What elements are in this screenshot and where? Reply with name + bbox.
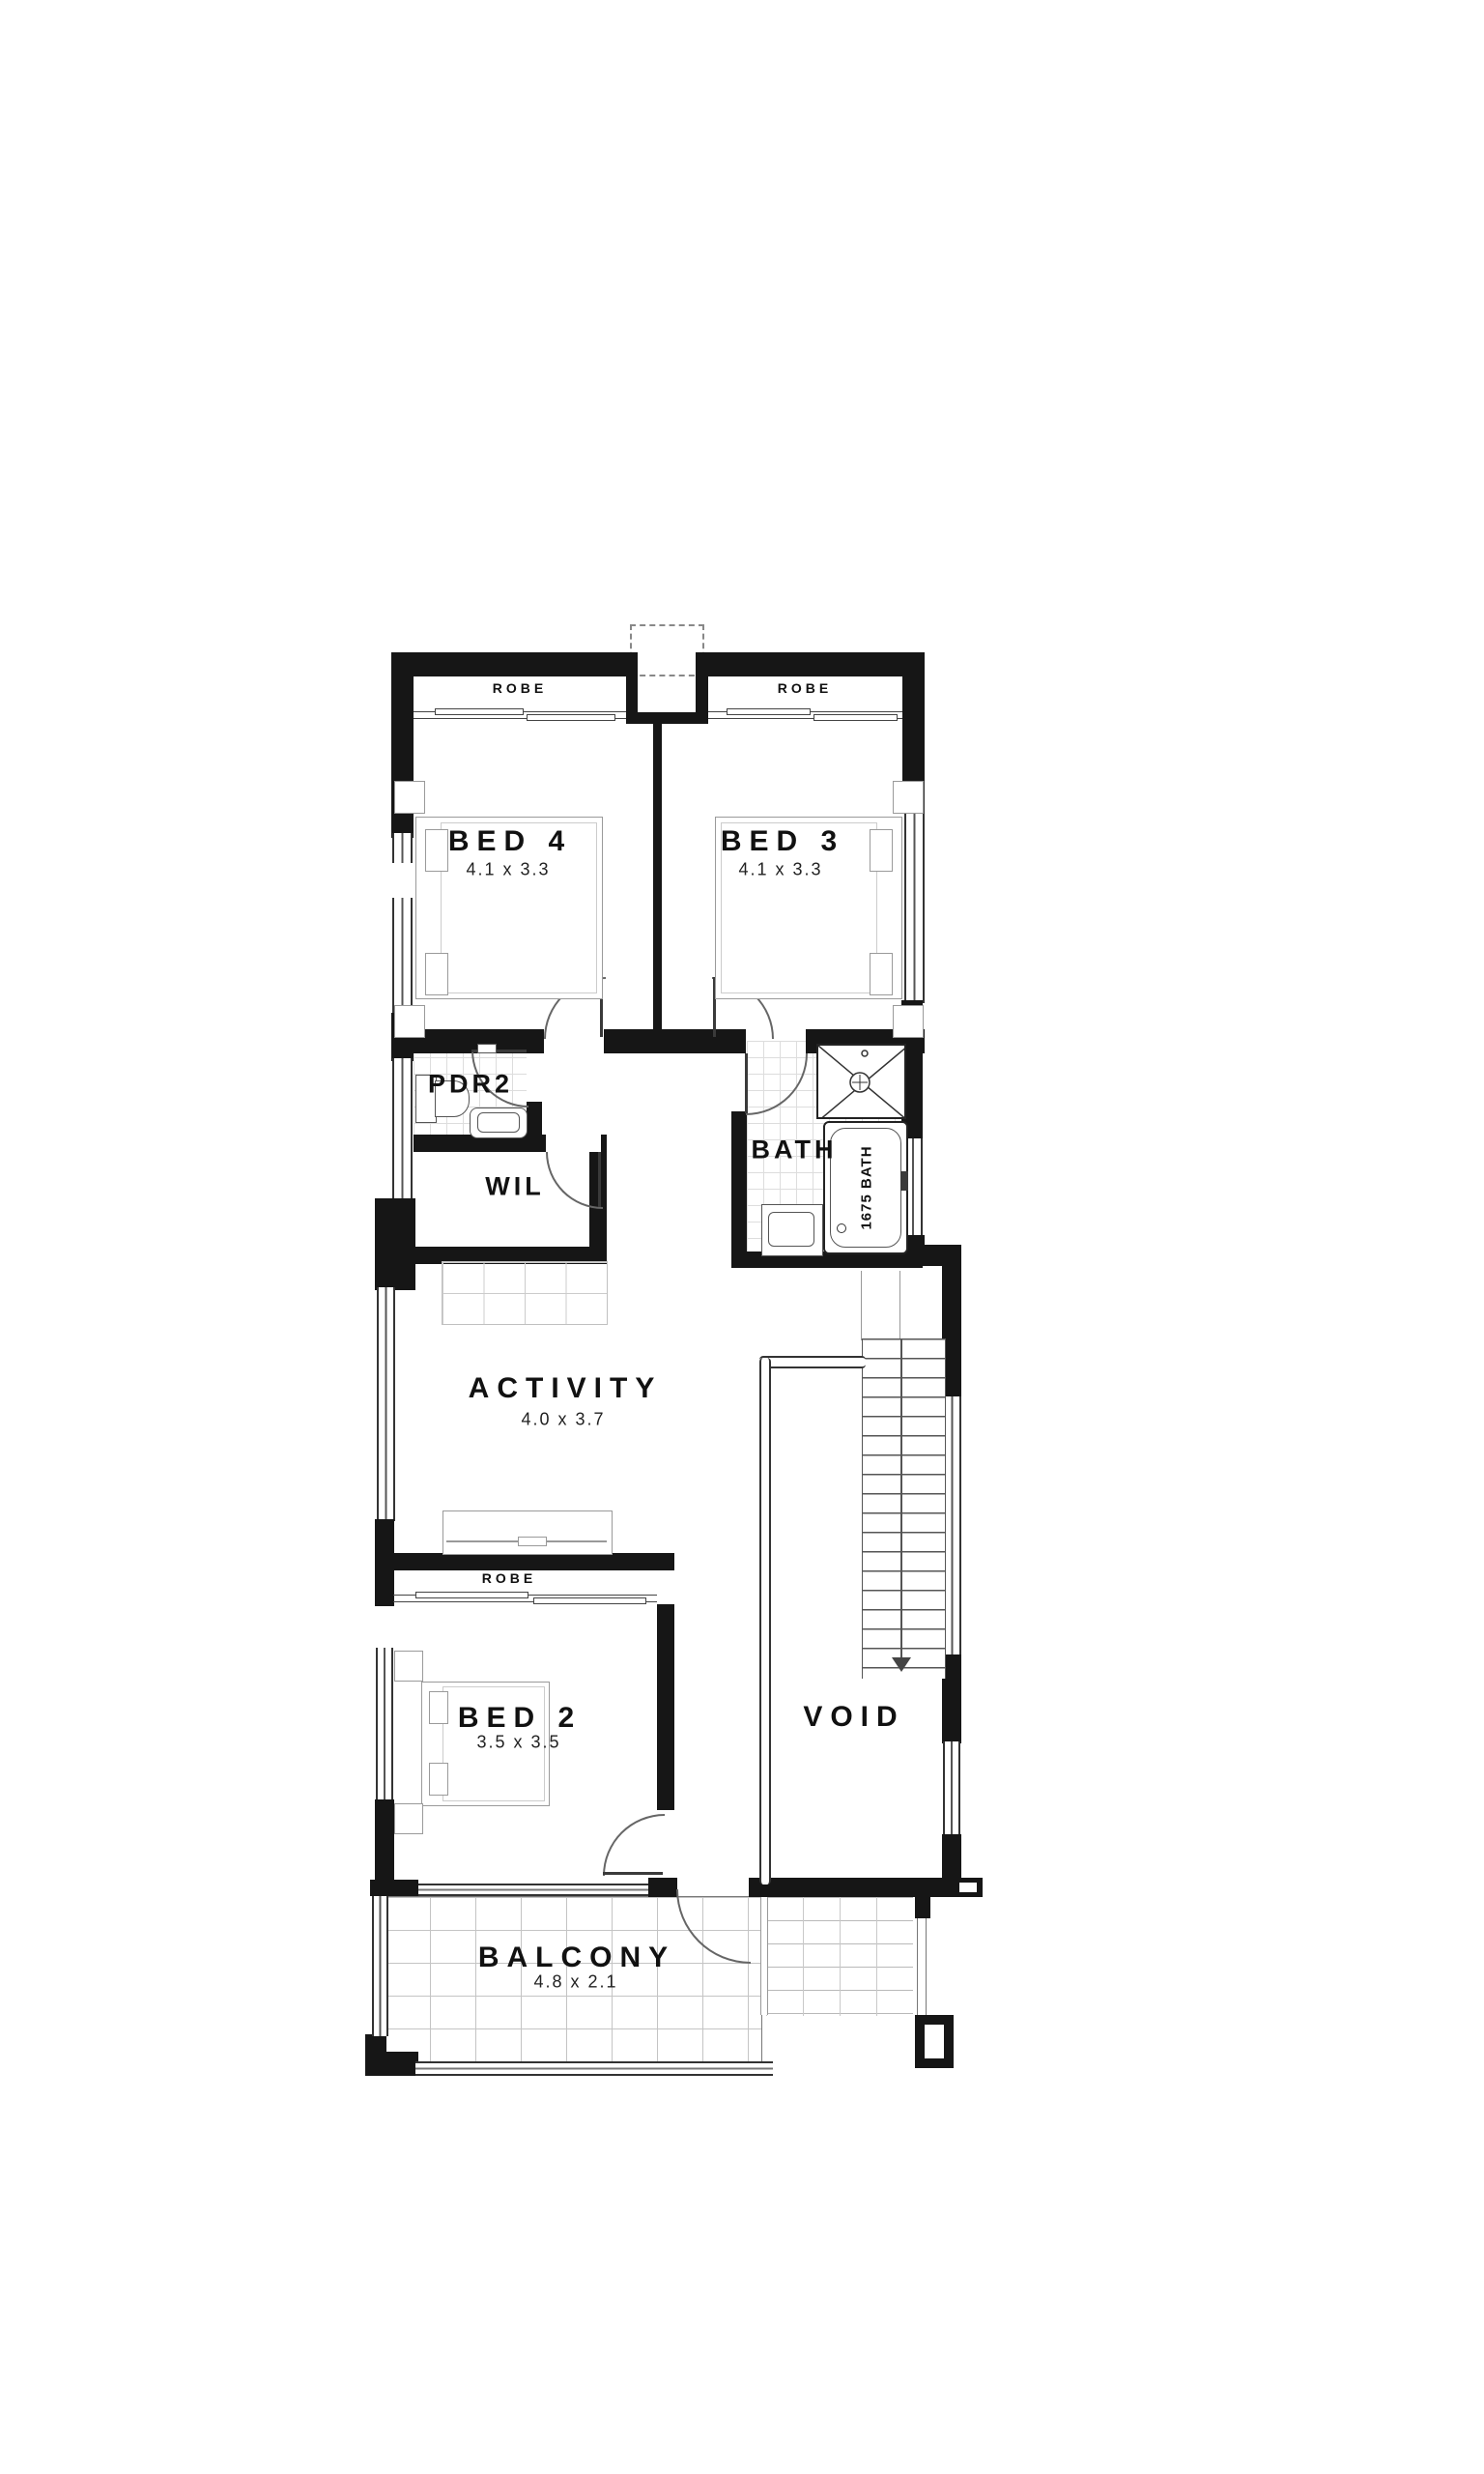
bed4-window: [392, 833, 413, 1017]
shower: [816, 1044, 906, 1119]
bed3-window: [904, 781, 925, 1003]
bed3-robe-door: [813, 714, 898, 721]
bed3-side-table: [893, 781, 924, 814]
shower-screen-lines: [818, 1046, 906, 1119]
bed2-side-table: [394, 1651, 423, 1682]
bed3-pillow: [870, 953, 893, 995]
activity-desk-drawer: [518, 1537, 547, 1546]
bathtub-tap: [900, 1171, 908, 1191]
bed4-dims: 4.1 x 3.3: [466, 860, 550, 880]
activity-label: ACTIVITY: [469, 1372, 663, 1405]
pdr2-shelf: [477, 1044, 497, 1053]
north-marker-box: [389, 863, 413, 898]
activity-window: [377, 1287, 395, 1521]
bed3-robe-label: ROBE: [778, 680, 832, 696]
bed3-side-table: [893, 1005, 924, 1038]
pdr2-right-wall-top: [527, 1041, 542, 1053]
bed2-door-leaf: [603, 1872, 663, 1875]
stair-guide-left: [861, 1271, 862, 1340]
wall-right-1: [902, 652, 925, 785]
balcony-left-rail: [372, 1896, 388, 2036]
wil-label: WIL: [485, 1172, 544, 1202]
bed2-robe-top-wall: [375, 1553, 674, 1570]
bed2-pillow: [429, 1763, 448, 1796]
bed3-label: BED 3: [721, 825, 844, 858]
wall-top-left: [391, 652, 630, 676]
bathtub-plug: [837, 1223, 846, 1233]
pdr2-label: PDR2: [428, 1070, 513, 1100]
bed4-pillow: [425, 829, 448, 872]
bed4-robe-door: [435, 708, 524, 715]
void-bottom-wall-notch: [959, 1883, 977, 1892]
void-rail-post: [749, 1878, 805, 1897]
bed2-robe-door: [533, 1597, 646, 1604]
bed4-side-table: [394, 781, 425, 814]
bed4-robe-door: [527, 714, 615, 721]
balcony-corner-post-h: [365, 2052, 418, 2076]
bathtub-label: 1675 BATH: [859, 1145, 875, 1229]
void-window: [943, 1741, 960, 1838]
bath-label: BATH: [752, 1136, 838, 1165]
bed2-balcony-window: [418, 1884, 648, 1896]
activity-dims: 4.0 x 3.7: [521, 1410, 605, 1430]
stair-handrail: [759, 1356, 866, 1368]
niche-left-wall: [626, 652, 638, 718]
balcony-label: BALCONY: [478, 1942, 675, 1974]
bed4-pillow: [425, 953, 448, 995]
niche-bottom-wall: [626, 712, 708, 724]
wall-bed-divider: [653, 718, 662, 1053]
bed3-dims: 4.1 x 3.3: [738, 860, 822, 880]
niche-dashed-outline: [630, 624, 704, 676]
bed2-label: BED 2: [458, 1702, 582, 1735]
balcony-front-rail: [415, 2061, 773, 2076]
void-label: VOID: [803, 1701, 904, 1734]
floor-plan: (N): [0, 0, 1484, 2474]
wil-door-swing: [546, 1152, 603, 1209]
court-right-pier: [915, 1897, 930, 1918]
wall-right-6: [942, 1834, 961, 1880]
pdr2-window: [392, 1058, 413, 1201]
activity-storage: [442, 1261, 608, 1325]
wil-door-leaf: [598, 1152, 601, 1207]
bed4-side-table: [394, 1005, 425, 1038]
bed2-robe-door: [415, 1592, 528, 1598]
bed4-robe-label: ROBE: [493, 680, 547, 696]
bed2-dims: 3.5 x 3.5: [476, 1733, 560, 1753]
court-right-wall: [917, 1918, 927, 2017]
bed2-window: [376, 1648, 393, 1802]
wall-left-5: [375, 1799, 394, 1884]
bath-door-leaf: [745, 1053, 748, 1113]
bath-vanity-basin: [768, 1212, 814, 1247]
bed2-right-wall: [657, 1604, 674, 1810]
activity-desk: [442, 1510, 613, 1555]
void-balustrade: [759, 1358, 771, 1884]
bottom-right-pier: [915, 2015, 954, 2068]
balcony-left-post: [370, 1880, 418, 1896]
niche-right-wall: [696, 652, 708, 718]
pdr2-basin-bowl: [477, 1112, 520, 1133]
bed4-label: BED 4: [448, 825, 572, 858]
wall-top-right: [702, 652, 925, 676]
bed3-pillow: [870, 829, 893, 872]
staircase: [862, 1338, 946, 1679]
bath-left-wall: [731, 1111, 747, 1264]
court-floor-tiles: [766, 1897, 913, 2016]
bed2-robe-label: ROBE: [482, 1570, 536, 1586]
bed2-door-swing: [603, 1814, 665, 1876]
balcony-mid-post: [648, 1878, 677, 1897]
bed3-robe-door: [727, 708, 811, 715]
stair-guide-mid: [899, 1271, 900, 1340]
balcony-dims: 4.8 x 2.1: [533, 1972, 617, 1993]
wall-left-3: [375, 1198, 415, 1290]
bed2-pillow: [429, 1691, 448, 1724]
stair-center-line: [900, 1338, 902, 1657]
wil-divider-right: [601, 1135, 607, 1152]
void-bottom-wall: [805, 1878, 983, 1897]
void-balustrade-lower: [760, 1897, 768, 2015]
bed2-side-table: [394, 1803, 423, 1834]
stair-down-arrow: [892, 1657, 911, 1672]
